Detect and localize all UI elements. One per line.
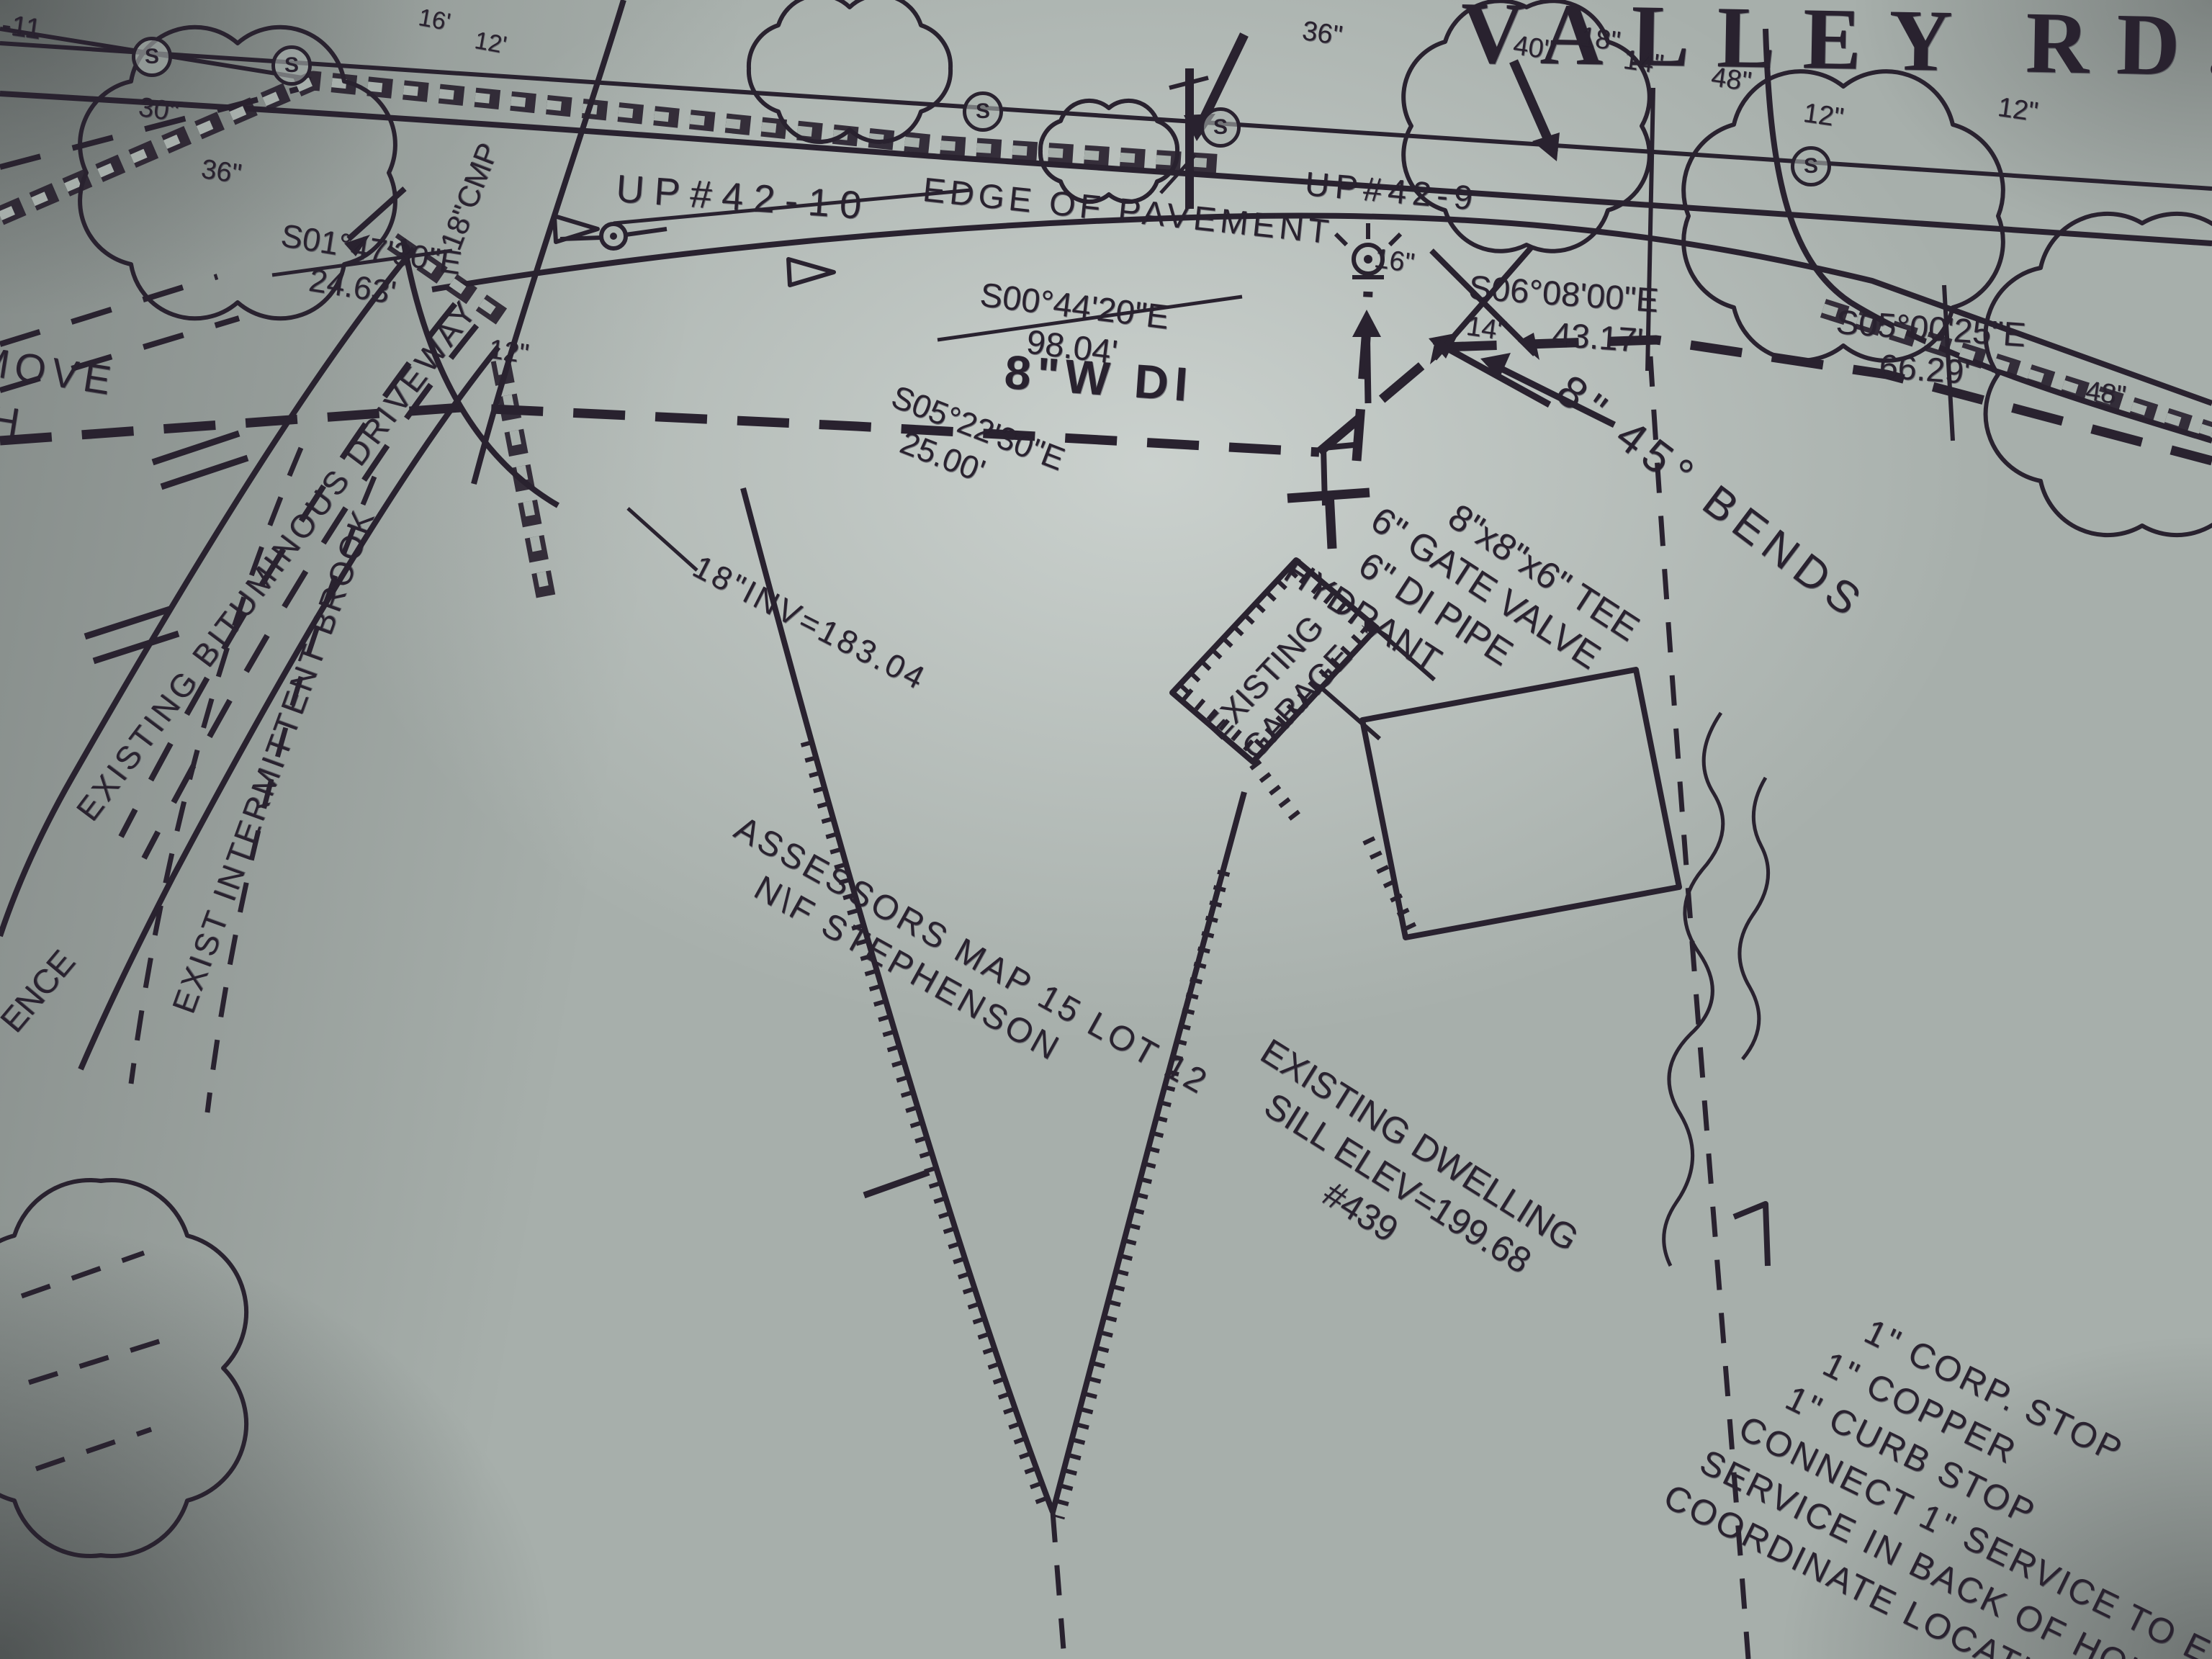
sewer-symbol: S <box>132 37 172 77</box>
flag-symbol <box>788 259 834 285</box>
tree-size-label: 12" <box>1996 91 2041 130</box>
site-plan-photo: VALLEY RD. UP#42-10 EDGE OF PAVEMENT UP#… <box>0 0 2212 1659</box>
service-note-bracket <box>1734 1204 1768 1266</box>
tree-size-label: 14" <box>1622 43 1666 82</box>
wall-dim-12: 12' <box>472 26 509 61</box>
tree-size-label: 30" <box>137 91 181 130</box>
tree-size-label: 40" <box>1511 29 1556 68</box>
wall-dim-16: 16' <box>416 3 453 38</box>
tree-size-label: 48" <box>2084 374 2128 413</box>
tree-size-label: 48" <box>1709 60 1754 99</box>
tree-size-label: 14" <box>1465 310 1509 349</box>
sewer-symbol: S <box>1791 146 1831 186</box>
sewer-symbol: S <box>1200 107 1241 148</box>
tree-size-label: 18" <box>1578 20 1623 59</box>
road-name: VALLEY RD. <box>1460 0 2212 101</box>
tree-size-label: 12" <box>487 333 531 372</box>
tree-size-label: 12" <box>1802 96 1846 135</box>
wetland-outline <box>0 1180 246 1556</box>
tree-size-label: 36" <box>1300 14 1345 53</box>
distance-text: 43.17' <box>1551 314 1658 362</box>
flow-arrow <box>1352 310 1381 403</box>
handwritten-annotation <box>1664 713 1723 1266</box>
sewer-symbol: S <box>271 45 312 86</box>
edge-fragment-corner: -11 <box>0 7 43 48</box>
handwritten-annotation <box>1740 778 1768 1059</box>
bearing-label: S05°00'25"E 66.29' <box>1832 301 2027 397</box>
tree-size-label: 36" <box>199 153 244 192</box>
sewer-symbol: S <box>963 91 1003 132</box>
tree-size-label: 16" <box>1372 242 1417 281</box>
swale-right <box>1053 792 1244 1512</box>
